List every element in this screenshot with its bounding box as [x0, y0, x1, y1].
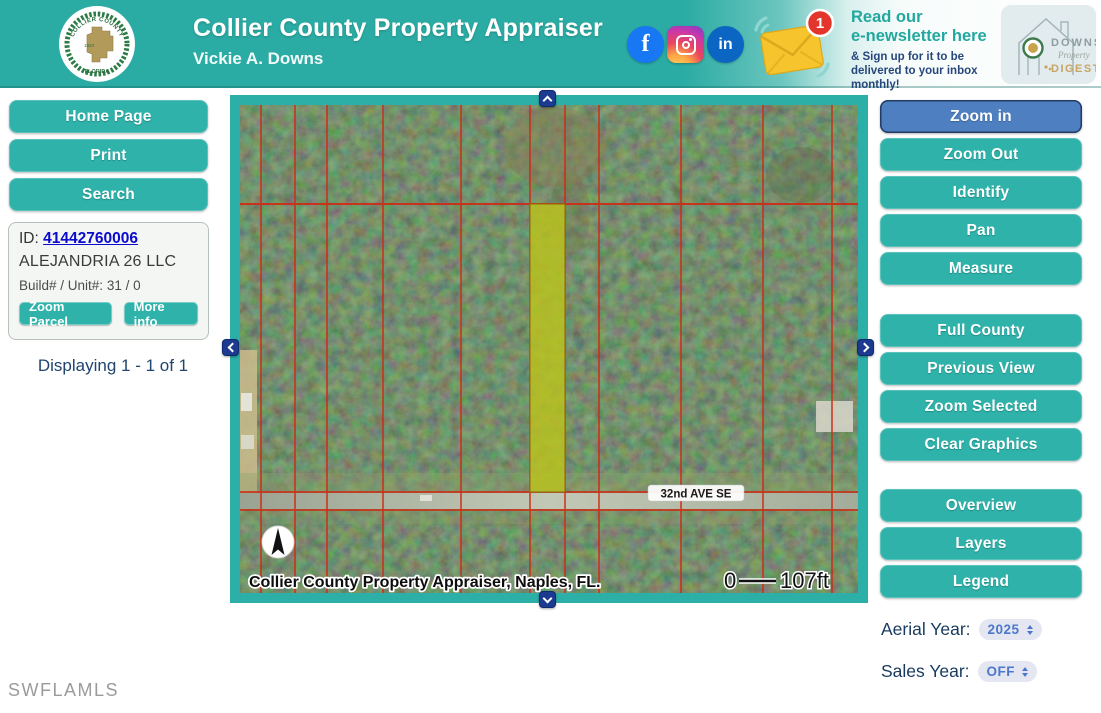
chevron-right-icon — [859, 343, 869, 353]
newsletter-promo: Read our e-newsletter here & Sign up for… — [851, 8, 1003, 92]
aerial-year-row: Aerial Year: 2025 — [881, 619, 1042, 640]
instagram-icon[interactable] — [667, 26, 704, 63]
sales-year-row: Sales Year: OFF — [881, 661, 1037, 682]
digest-word-top: DOWNS — [1051, 37, 1096, 49]
page-title: Collier County Property Appraiser — [193, 14, 603, 43]
stepper-icon — [1022, 667, 1028, 677]
property-appraiser-app: COLLIER COUNTY 1923 FLORIDA Collier Coun… — [0, 0, 1101, 713]
sales-year-value: OFF — [987, 664, 1016, 679]
pan-down-arrow[interactable] — [539, 591, 556, 608]
legend-button[interactable]: Legend — [880, 565, 1082, 598]
chevron-down-icon — [543, 593, 553, 603]
parcel-id-link[interactable]: 41442760006 — [43, 230, 138, 247]
swflamls-watermark: SWFLAMLS — [8, 680, 119, 701]
map-panel-buttons: Overview Layers Legend — [880, 489, 1082, 598]
pan-right-arrow[interactable] — [857, 339, 874, 356]
newsletter-line1: Read our — [851, 8, 923, 26]
street-label: 32nd AVE SE — [648, 485, 744, 501]
newsletter-subtext: & Sign up for it to be delivered to your… — [851, 51, 1003, 92]
pan-button[interactable]: Pan — [880, 214, 1082, 247]
seal-year: 1923 — [84, 43, 95, 48]
parcel-owner: ALEJANDRIA 26 LLC — [19, 253, 198, 271]
header: COLLIER COUNTY 1923 FLORIDA Collier Coun… — [0, 0, 1101, 88]
sales-year-selector[interactable]: OFF — [978, 661, 1038, 682]
svg-text:107ft: 107ft — [780, 568, 829, 593]
page-subtitle: Vickie A. Downs — [193, 49, 323, 69]
digest-word-script: Property — [1057, 50, 1090, 60]
build-unit-value: 31 / 0 — [107, 278, 141, 293]
parcel-card-actions: Zoom Parcel More info — [19, 302, 198, 325]
full-county-button[interactable]: Full County — [880, 314, 1082, 347]
north-compass-icon — [262, 526, 294, 558]
aerial-year-selector[interactable]: 2025 — [979, 619, 1042, 640]
digest-word-bottom: DIGEST — [1051, 63, 1096, 75]
more-info-button[interactable]: More info — [124, 302, 198, 325]
zoom-selected-button[interactable]: Zoom Selected — [880, 390, 1082, 423]
newsletter-line2: e-newsletter here — [851, 27, 987, 45]
newsletter-link[interactable]: Read our e-newsletter here — [851, 8, 1003, 46]
build-unit-label: Build# / Unit#: — [19, 278, 103, 293]
instagram-lens — [682, 41, 690, 49]
home-page-button[interactable]: Home Page — [9, 100, 208, 133]
map-caption: Collier County Property Appraiser, Naple… — [249, 574, 600, 591]
map-frame: 32nd AVE SE Collier County Property Appr… — [230, 95, 868, 603]
aerial-year-label: Aerial Year: — [881, 619, 971, 640]
zoom-out-button[interactable]: Zoom Out — [880, 138, 1082, 171]
aerial-year-value: 2025 — [988, 622, 1020, 637]
build-unit-line: Build# / Unit#: 31 / 0 — [19, 278, 198, 293]
chevron-left-icon — [227, 343, 237, 353]
seal-bottom-text: FLORIDA — [85, 69, 109, 75]
parcel-id-label: ID: — [19, 230, 39, 247]
highlighted-parcel[interactable] — [530, 204, 565, 492]
notification-badge: 1 — [816, 15, 824, 32]
instagram-flash-dot — [689, 38, 692, 41]
instagram-camera — [676, 35, 696, 55]
linkedin-glyph: in — [718, 36, 732, 54]
pan-left-arrow[interactable] — [222, 339, 239, 356]
left-sidebar: Home Page Print Search — [9, 100, 208, 211]
facebook-icon[interactable]: f — [627, 26, 664, 63]
results-count-text: Displaying 1 - 1 of 1 — [18, 356, 208, 376]
chevron-up-icon — [543, 95, 553, 105]
previous-view-button[interactable]: Previous View — [880, 352, 1082, 385]
map-view-buttons: Full County Previous View Zoom Selected … — [880, 314, 1082, 461]
svg-text:32nd AVE SE: 32nd AVE SE — [661, 489, 732, 501]
newsletter-envelope-icon[interactable]: 1 — [746, 8, 838, 84]
zoom-in-button[interactable]: Zoom in — [880, 100, 1082, 133]
downs-digest-logo[interactable]: DOWNS Property DIGEST — [1001, 5, 1096, 84]
identify-button[interactable]: Identify — [880, 176, 1082, 209]
clearing-patch — [503, 107, 607, 187]
stepper-icon — [1027, 625, 1033, 635]
sales-year-label: Sales Year: — [881, 661, 970, 682]
map-tool-buttons: Zoom in Zoom Out Identify Pan Measure — [880, 100, 1082, 285]
road — [240, 493, 858, 509]
parcel-info-card: ID: 41442760006 ALEJANDRIA 26 LLC Build#… — [8, 222, 209, 340]
building-patch — [816, 401, 853, 432]
zoom-parcel-button[interactable]: Zoom Parcel — [19, 302, 112, 325]
print-button[interactable]: Print — [9, 139, 208, 172]
clear-graphics-button[interactable]: Clear Graphics — [880, 428, 1082, 461]
facebook-glyph: f — [642, 31, 650, 58]
svg-text:0: 0 — [724, 568, 736, 593]
parcel-id-line: ID: 41442760006 — [19, 230, 198, 248]
linkedin-icon[interactable]: in — [707, 26, 744, 63]
measure-button[interactable]: Measure — [880, 252, 1082, 285]
layers-button[interactable]: Layers — [880, 527, 1082, 560]
search-button[interactable]: Search — [9, 178, 208, 211]
overview-button[interactable]: Overview — [880, 489, 1082, 522]
county-seal-logo: COLLIER COUNTY 1923 FLORIDA — [58, 5, 136, 83]
pan-up-arrow[interactable] — [539, 90, 556, 107]
aerial-map[interactable]: 32nd AVE SE Collier County Property Appr… — [240, 105, 858, 593]
